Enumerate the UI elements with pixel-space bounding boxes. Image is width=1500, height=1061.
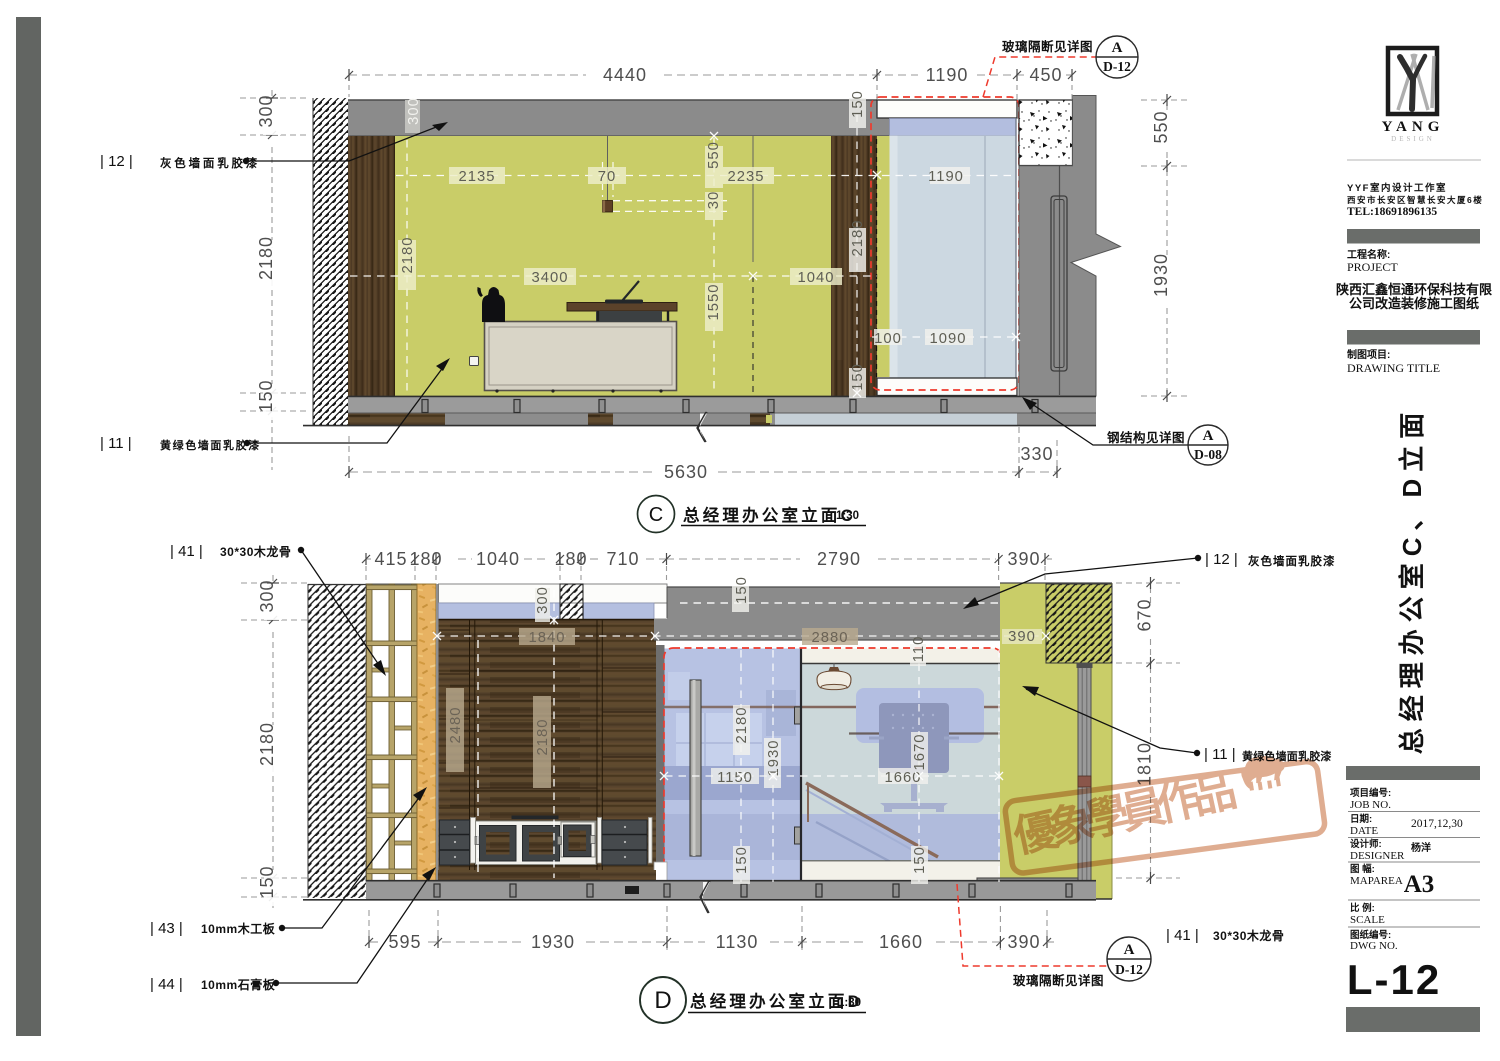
svg-text:2790: 2790 <box>817 549 861 569</box>
svg-text:2180: 2180 <box>535 719 551 756</box>
svg-text:390: 390 <box>1007 932 1040 952</box>
svg-text:330: 330 <box>1020 444 1053 464</box>
svg-text:1150: 1150 <box>717 770 753 786</box>
svg-text:| 41 |: | 41 | <box>1166 927 1199 944</box>
svg-text:390: 390 <box>1007 549 1040 569</box>
svg-text:DRAWING TITLE: DRAWING TITLE <box>1347 361 1440 375</box>
svg-text:2180: 2180 <box>734 707 750 744</box>
svg-text:1190: 1190 <box>928 169 964 185</box>
svg-text:2235: 2235 <box>728 169 765 185</box>
svg-text:比 例:: 比 例: <box>1350 902 1375 914</box>
svg-text:TEL:18691896135: TEL:18691896135 <box>1347 206 1437 218</box>
svg-text:| 11 |: | 11 | <box>100 435 132 452</box>
svg-text:30*30木龙骨: 30*30木龙骨 <box>220 544 291 559</box>
svg-text:595: 595 <box>388 932 421 952</box>
svg-text:1040: 1040 <box>476 549 520 569</box>
svg-text:总经理办公室立面D: 总经理办公室立面D <box>690 991 863 1011</box>
svg-text:1040: 1040 <box>798 270 835 286</box>
svg-text:1550: 1550 <box>706 284 722 321</box>
svg-text:D: D <box>654 987 671 1014</box>
svg-text:SCALE: SCALE <box>1350 914 1385 926</box>
svg-text:| 41 |: | 41 | <box>170 543 203 560</box>
svg-text:陕西汇鑫恒通环保科技有限: 陕西汇鑫恒通环保科技有限 <box>1336 282 1493 297</box>
svg-text:2180: 2180 <box>400 237 416 274</box>
svg-text:玻璃隔断见详图: 玻璃隔断见详图 <box>1013 973 1104 988</box>
svg-text:30: 30 <box>706 191 722 209</box>
svg-text:2180: 2180 <box>850 220 866 257</box>
svg-text:DESIGNER: DESIGNER <box>1350 850 1405 862</box>
svg-text:A3: A3 <box>1404 871 1435 898</box>
svg-text:150: 150 <box>734 576 750 604</box>
svg-text:YYF室内设计工作室: YYF室内设计工作室 <box>1347 182 1447 194</box>
svg-text:1:30: 1:30 <box>836 510 859 522</box>
svg-text:PROJECT: PROJECT <box>1347 260 1398 274</box>
svg-text:L-12: L-12 <box>1347 956 1441 1003</box>
svg-text:DATE: DATE <box>1350 825 1378 837</box>
svg-text:总经理办公室C、D立面: 总经理办公室C、D立面 <box>1397 406 1427 755</box>
svg-text:| 43 |: | 43 | <box>150 920 183 937</box>
svg-text:JOB NO.: JOB NO. <box>1350 799 1391 811</box>
svg-text:415: 415 <box>374 549 407 569</box>
svg-text:杨洋: 杨洋 <box>1411 841 1431 854</box>
svg-text:西安市长安区智慧长安大厦6楼: 西安市长安区智慧长安大厦6楼 <box>1347 195 1483 205</box>
svg-text:1930: 1930 <box>531 932 575 952</box>
svg-text:10mm石膏板: 10mm石膏板 <box>201 977 276 992</box>
svg-text:A: A <box>1203 428 1214 444</box>
svg-text:1090: 1090 <box>930 331 967 347</box>
svg-text:300: 300 <box>535 586 551 614</box>
svg-text:710: 710 <box>606 549 639 569</box>
svg-text:180: 180 <box>554 549 587 569</box>
svg-text:150: 150 <box>256 379 276 412</box>
svg-text:150: 150 <box>850 90 866 118</box>
svg-text:1930: 1930 <box>766 740 782 777</box>
svg-text:| 44 |: | 44 | <box>150 976 183 993</box>
svg-text:1670: 1670 <box>912 734 928 771</box>
svg-text:总经理办公室立面C: 总经理办公室立面C <box>683 505 856 525</box>
svg-text:450: 450 <box>1029 65 1062 85</box>
svg-text:70: 70 <box>598 169 616 185</box>
svg-text:670: 670 <box>1135 598 1155 631</box>
svg-text:2017,12,30: 2017,12,30 <box>1411 818 1463 830</box>
svg-text:180: 180 <box>409 549 442 569</box>
svg-text:2135: 2135 <box>459 169 496 185</box>
svg-text:MAPAREA: MAPAREA <box>1350 875 1403 887</box>
svg-text:1190: 1190 <box>926 65 969 85</box>
svg-text:2480: 2480 <box>448 707 464 744</box>
svg-text:5630: 5630 <box>664 462 708 482</box>
svg-text:2880: 2880 <box>812 630 849 646</box>
svg-text:制图项目:: 制图项目: <box>1347 348 1390 361</box>
svg-text:图 幅:: 图 幅: <box>1350 863 1375 875</box>
svg-text:1:30: 1:30 <box>838 997 861 1009</box>
svg-text:灰色墙面乳胶漆: 灰色墙面乳胶漆 <box>1248 554 1336 568</box>
svg-text:D-12: D-12 <box>1103 59 1131 74</box>
svg-text:150: 150 <box>257 865 277 898</box>
svg-text:30*30木龙骨: 30*30木龙骨 <box>1213 928 1284 943</box>
svg-text:2180: 2180 <box>257 722 277 766</box>
svg-text:1930: 1930 <box>1151 253 1171 297</box>
svg-text:10mm木工板: 10mm木工板 <box>201 921 276 936</box>
svg-text:550: 550 <box>1151 110 1171 143</box>
svg-text:4440: 4440 <box>603 65 647 85</box>
svg-text:DWG NO.: DWG NO. <box>1350 940 1398 952</box>
svg-text:| 11 |: | 11 | <box>1204 746 1236 763</box>
svg-text:300: 300 <box>406 97 422 125</box>
svg-text:钢结构见详图: 钢结构见详图 <box>1107 430 1185 445</box>
svg-text:150: 150 <box>850 363 866 391</box>
svg-text:3400: 3400 <box>532 270 569 286</box>
svg-text:| 12 |: | 12 | <box>100 153 133 170</box>
svg-text:A: A <box>1112 40 1123 56</box>
svg-text:1810: 1810 <box>1135 742 1155 786</box>
svg-text:1130: 1130 <box>716 932 759 952</box>
svg-text:110: 110 <box>911 636 927 663</box>
svg-text:300: 300 <box>256 94 276 127</box>
svg-text:300: 300 <box>257 579 277 612</box>
svg-text:D-08: D-08 <box>1194 447 1222 462</box>
svg-text:1840: 1840 <box>529 630 566 646</box>
svg-text:日期:: 日期: <box>1350 813 1372 825</box>
svg-text:1660: 1660 <box>879 932 923 952</box>
svg-text:| 12 |: | 12 | <box>1205 551 1238 568</box>
svg-text:100: 100 <box>874 331 902 347</box>
svg-text:DESIGN: DESIGN <box>1391 135 1435 143</box>
svg-text:YANG: YANG <box>1382 119 1445 135</box>
svg-text:项目编号:: 项目编号: <box>1350 787 1391 799</box>
svg-text:390: 390 <box>1008 629 1036 645</box>
svg-text:C: C <box>649 504 663 526</box>
svg-text:150: 150 <box>734 846 750 874</box>
svg-text:玻璃隔断见详图: 玻璃隔断见详图 <box>1002 39 1093 54</box>
svg-text:设计师:: 设计师: <box>1350 838 1382 850</box>
svg-text:2180: 2180 <box>256 236 276 280</box>
svg-text:150: 150 <box>912 846 928 874</box>
svg-text:A: A <box>1124 942 1135 958</box>
svg-text:550: 550 <box>706 141 722 169</box>
svg-text:公司改造装修施工图纸: 公司改造装修施工图纸 <box>1349 296 1479 311</box>
svg-text:D-12: D-12 <box>1115 962 1143 977</box>
